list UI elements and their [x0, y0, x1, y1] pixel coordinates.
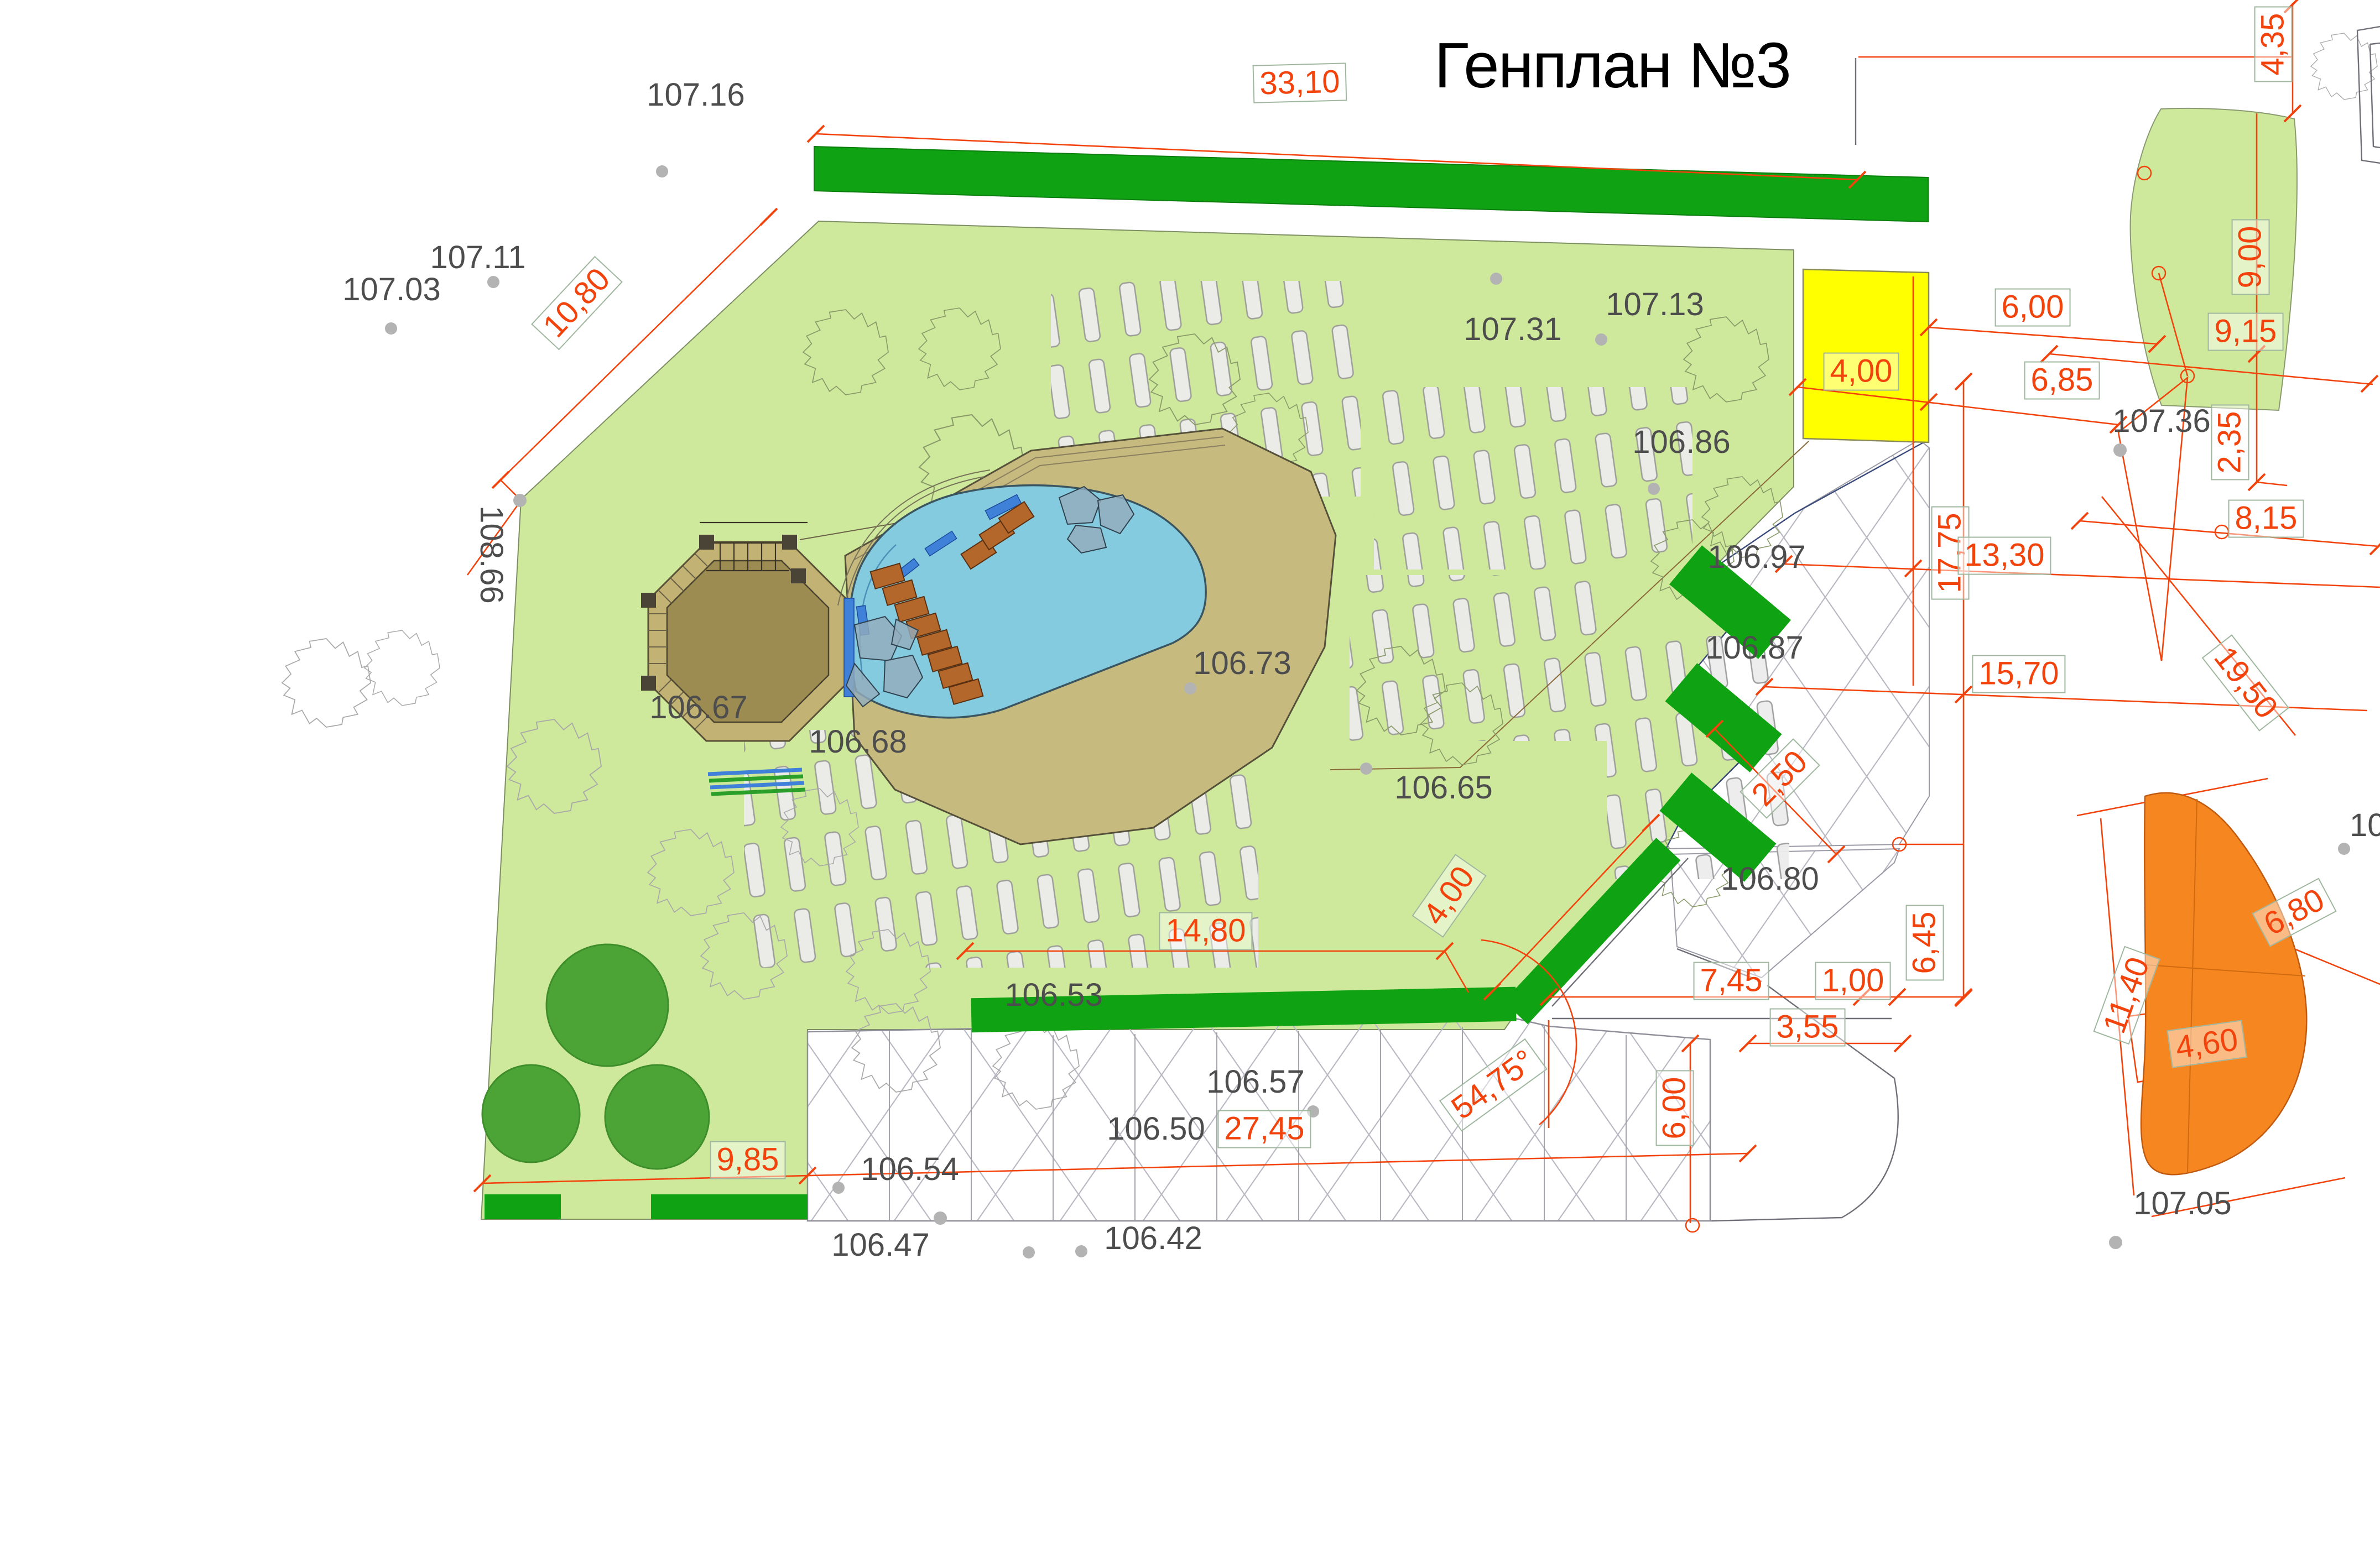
elevation-107-16: 107.16 [647, 79, 744, 111]
elevation-106-47: 106.47 [831, 1229, 929, 1261]
dim-6-00-bottom: 6,00 [1656, 1070, 1694, 1146]
elevation-106-67: 106.67 [649, 692, 747, 724]
elevation-107-03: 107.03 [342, 274, 440, 306]
dim-9-85: 9,85 [710, 1141, 786, 1179]
dim-15-70: 15,70 [1972, 655, 2065, 693]
elevation-106-87: 106.87 [1705, 632, 1803, 664]
elevation-108-66: 108.66 [475, 505, 507, 603]
dim-1-00: 1,00 [1815, 962, 1891, 1000]
plan-title: Генплан №3 [1434, 33, 1790, 97]
elevation-106-65: 106.65 [1394, 772, 1492, 804]
dim-6-45: 6,45 [1906, 905, 1944, 981]
elevation-106-57: 106.57 [1206, 1066, 1304, 1098]
plan-drawing [0, 0, 2380, 1551]
dim-6-85: 6,85 [2024, 362, 2100, 400]
parcel-green-blob [2131, 108, 2297, 410]
dim-27-45: 27,45 [1217, 1110, 1311, 1148]
elevation-106-42: 106.42 [1104, 1223, 1202, 1255]
orange-mound [2141, 793, 2306, 1174]
dim-9-00: 9,00 [2232, 220, 2270, 295]
dim-6-00-top: 6,00 [1995, 289, 2071, 327]
elevation-106-80: 106.80 [1721, 863, 1819, 895]
site-plan-canvas: Генплан №3 107.16 107.11 107.03 108.66 1… [0, 0, 2380, 1551]
dim-3-55: 3,55 [1770, 1009, 1846, 1047]
elevation-106-53: 106.53 [1004, 979, 1102, 1011]
elevation-106-50: 106.50 [1107, 1113, 1205, 1145]
elevation-107-31: 107.31 [1464, 314, 1561, 346]
dim-9-15: 9,15 [2208, 313, 2284, 351]
elevation-106-68: 106.68 [809, 726, 907, 758]
elevation-107-05: 107.05 [2133, 1188, 2231, 1220]
dim-4-35: 4,35 [2254, 7, 2293, 82]
dim-8-15: 8,15 [2228, 500, 2304, 538]
elevation-107-11: 107.11 [430, 242, 525, 274]
dim-14-80: 14,80 [1159, 912, 1252, 951]
dim-33-10: 33,10 [1253, 62, 1347, 103]
elevation-106-73: 106.73 [1193, 647, 1291, 680]
dim-2-35: 2,35 [2211, 405, 2249, 481]
elevation-106-97: 106.97 [1707, 541, 1805, 573]
elevation-10-cut: 10 [2350, 810, 2380, 842]
elevation-106-54: 106.54 [861, 1153, 959, 1186]
dim-13-30: 13,30 [1957, 537, 2051, 575]
dim-7-45: 7,45 [1694, 962, 1769, 1000]
elevation-107-36: 107.36 [2112, 405, 2210, 437]
elevation-106-86: 106.86 [1632, 426, 1730, 458]
elevation-107-13: 107.13 [1606, 289, 1704, 321]
dim-4-00-top: 4,00 [1824, 353, 1899, 391]
